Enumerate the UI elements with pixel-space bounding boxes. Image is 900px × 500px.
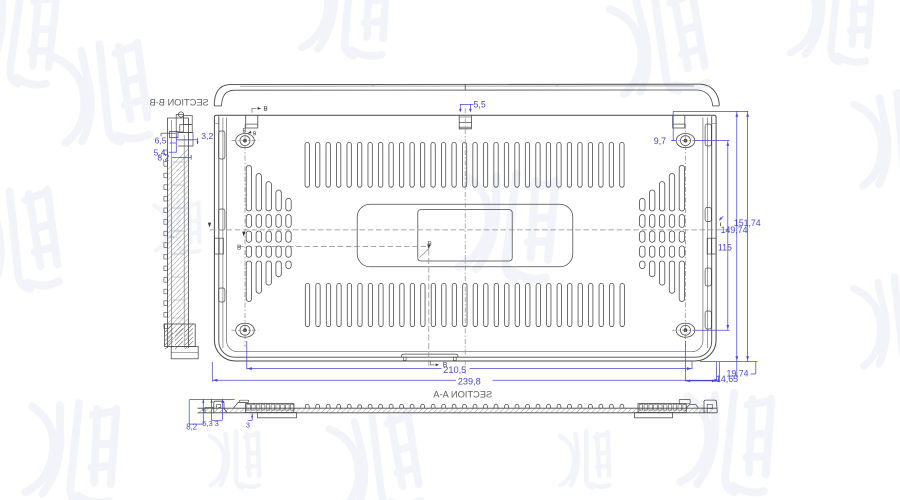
svg-text:SECTION B-B: SECTION B-B <box>149 98 208 108</box>
svg-text:210,5: 210,5 <box>443 365 466 375</box>
svg-text:5,5: 5,5 <box>474 99 486 109</box>
svg-text:6,5: 6,5 <box>155 136 167 146</box>
svg-text:151,74: 151,74 <box>734 218 761 228</box>
svg-text:5,3: 5,3 <box>202 419 213 428</box>
svg-text:SECTION A-A: SECTION A-A <box>433 390 493 400</box>
svg-text:239,8: 239,8 <box>458 376 481 386</box>
svg-text:8,2: 8,2 <box>157 153 169 163</box>
svg-text:3,2: 3,2 <box>201 131 213 141</box>
svg-text:115: 115 <box>718 243 732 253</box>
svg-text:3: 3 <box>246 420 250 429</box>
svg-text:8,2: 8,2 <box>186 422 197 431</box>
svg-text:3: 3 <box>215 419 219 428</box>
svg-text:9,7: 9,7 <box>654 136 666 146</box>
